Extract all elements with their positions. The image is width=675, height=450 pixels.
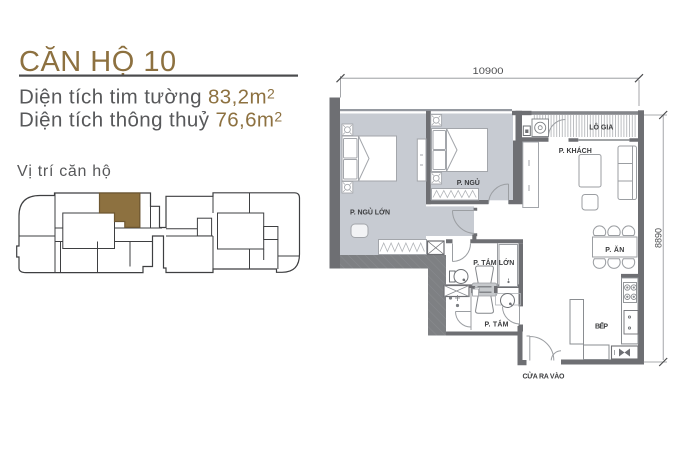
svg-text:BẾP: BẾP	[595, 321, 608, 331]
svg-text:CĂN HỘ 10: CĂN HỘ 10	[19, 44, 177, 78]
svg-text:CỬA RA VÀO: CỬA RA VÀO	[523, 372, 566, 381]
svg-text:Vị trí căn hộ: Vị trí căn hộ	[17, 163, 111, 180]
svg-text:P. NGỦ LỚN: P. NGỦ LỚN	[350, 208, 390, 217]
svg-text:10900: 10900	[473, 66, 504, 77]
svg-text:LÔ GIA: LÔ GIA	[589, 122, 613, 131]
svg-text:P. TẮM LỚN: P. TẮM LỚN	[473, 258, 514, 267]
svg-text:Diện tích thông thuỷ 76,6m2: Diện tích thông thuỷ 76,6m2	[19, 109, 283, 132]
svg-text:P. TẮM: P. TẮM	[485, 319, 509, 328]
svg-text:P. KHÁCH: P. KHÁCH	[559, 146, 592, 155]
svg-text:P. ĂN: P. ĂN	[605, 245, 624, 254]
svg-text:Diện tích tim tường 83,2m2: Diện tích tim tường 83,2m2	[19, 86, 275, 109]
svg-text:8890: 8890	[654, 228, 665, 248]
svg-text:P. NGỦ: P. NGỦ	[457, 178, 480, 187]
